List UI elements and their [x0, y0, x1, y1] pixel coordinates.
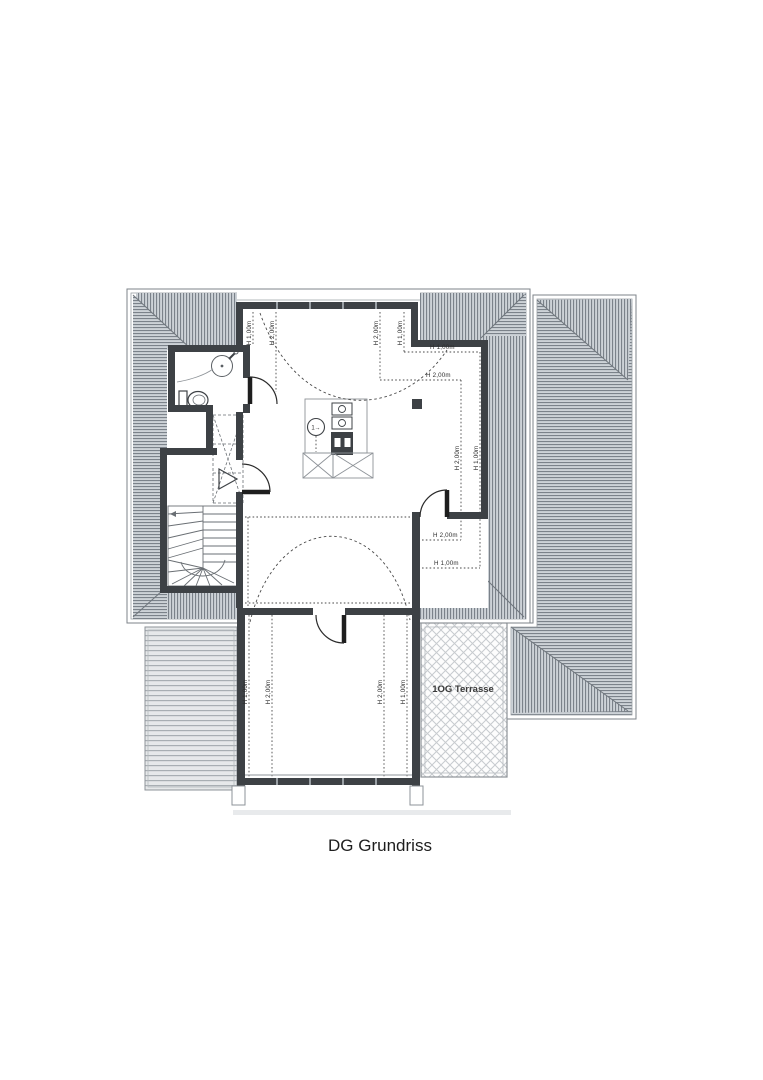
window-band-top: [243, 302, 413, 309]
height-label: H 1,00m: [242, 680, 249, 705]
height-label: H 2,00m: [373, 321, 380, 346]
roof-face-east: [488, 340, 526, 603]
height-label: H 2,00m: [265, 680, 272, 705]
floor-plan-svg: 1OG Terrasse: [0, 0, 763, 1080]
height-label: H 2,00m: [269, 321, 276, 346]
height-label: H 2,00m: [377, 680, 384, 705]
height-label: H 1,00m: [400, 680, 407, 705]
height-label: H 1,00m: [397, 321, 404, 346]
washbasin-drain: [221, 365, 224, 368]
height-label: H 1,00m: [246, 321, 253, 346]
window-band-bottom: [245, 778, 412, 785]
height-label: H 1,00m: [473, 446, 480, 471]
drawing-title: DG Grundriss: [328, 836, 432, 855]
lower-edge-band: [233, 810, 511, 815]
column-post: [412, 399, 422, 409]
height-label: H 2,00m: [426, 372, 451, 379]
terrace: 1OG Terrasse: [421, 623, 507, 777]
height-label: H 1,00m: [430, 344, 455, 351]
lower-left-roof: [145, 627, 237, 790]
terrace-label: 1OG Terrasse: [432, 684, 494, 695]
height-label: H 2,00m: [454, 446, 461, 471]
height-label: H 1,00m: [434, 560, 459, 567]
floor-plan-page: 1OG Terrasse: [0, 0, 763, 1080]
height-label: H 2,00m: [433, 532, 458, 539]
flue-marker-label: 1→: [311, 426, 320, 432]
wall-piers: [232, 786, 423, 805]
roof-face-south-left: [160, 593, 242, 619]
